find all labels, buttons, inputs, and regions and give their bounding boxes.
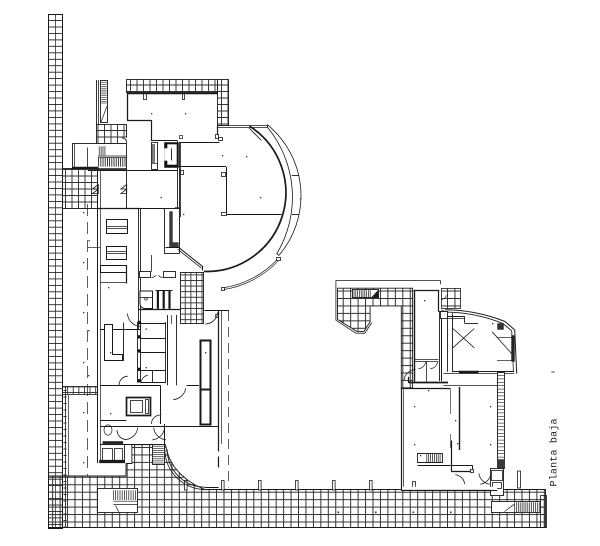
svg-text:Planta baja: Planta baja [549, 418, 561, 486]
